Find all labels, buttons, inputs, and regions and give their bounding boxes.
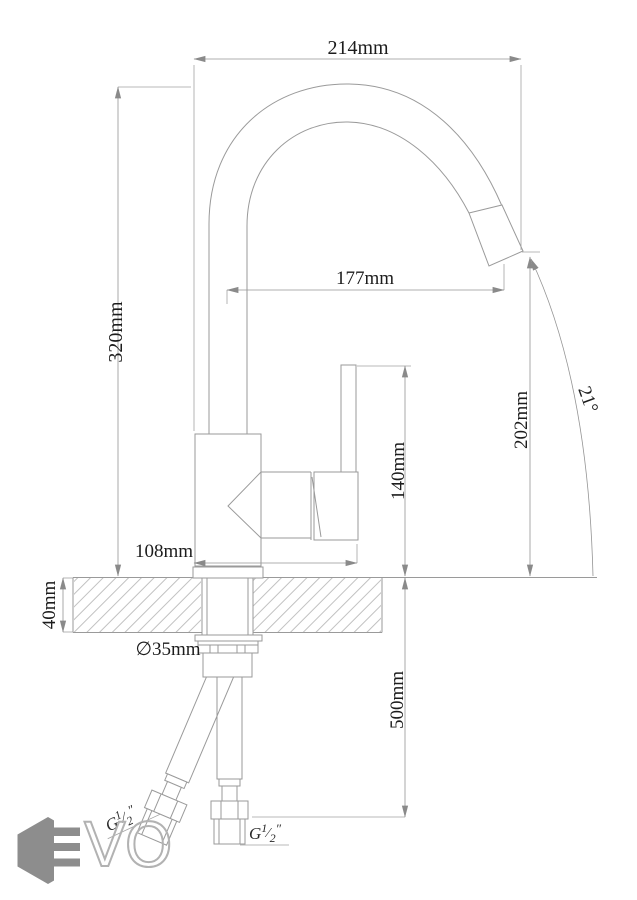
mounting-shank (202, 578, 253, 635)
dimension-total-width: 214mm (194, 37, 521, 431)
mounting-nut (198, 641, 258, 653)
faucet-aerator (469, 205, 523, 266)
hose-right-braid (217, 672, 242, 779)
faucet-body-column (195, 434, 261, 566)
mounting-assembly (195, 578, 262, 677)
faucet-handle-lever (341, 365, 356, 472)
drawing-svg: 214mm 320mm 177mm 202mm 21° 140mm 108mm … (0, 0, 637, 900)
faucet-body (193, 84, 523, 578)
thread-prefix: G (249, 824, 261, 843)
faucet-technical-drawing: 214mm 320mm 177mm 202mm 21° 140mm 108mm … (0, 0, 637, 900)
hose-right-nut (211, 801, 248, 819)
brand-logo: VO (18, 810, 173, 889)
thread-inches-mark: ″ (276, 821, 282, 836)
dim-body-depth-label: 108mm (135, 541, 193, 562)
dimension-spout-outlet-height: 202mm (511, 252, 540, 576)
dim-counter-thickness-label: 40mm (39, 581, 60, 630)
countertop-hatch-left (74, 578, 201, 632)
hose-right-collar (219, 779, 240, 786)
faucet-cartridge-housing (261, 472, 311, 540)
dim-spout-reach-label: 177mm (336, 268, 394, 289)
countertop (73, 578, 597, 633)
logo-outline-letters: VO (84, 810, 173, 881)
mounting-cylinder (203, 653, 252, 677)
logo-e-bar-middle (54, 843, 80, 851)
dim-hole-diameter-label: ∅35mm (135, 639, 200, 660)
thread-right-text: G1⁄2″ (249, 821, 282, 845)
dimension-counter-thickness: 40mm (39, 578, 73, 632)
dimension-total-height: 320mm (105, 87, 191, 576)
supply-hose-right (211, 672, 248, 844)
faucet-base-flange (193, 567, 263, 578)
logo-e-bar-top (54, 828, 80, 837)
hose-right-neck (222, 786, 237, 801)
dim-spout-outlet-height-label: 202mm (511, 391, 532, 449)
thread-label-right: G1⁄2″ (240, 821, 289, 845)
dim-hose-length-label: 500mm (387, 671, 408, 729)
mounting-washer (195, 635, 262, 641)
countertop-hatch-right (253, 578, 381, 632)
faucet-handle-body (314, 472, 358, 540)
dim-total-height-label: 320mm (105, 301, 127, 363)
dimension-handle-height: 140mm (357, 366, 411, 576)
water-trajectory-arc (531, 259, 593, 576)
dimension-spout-angle: 21° (531, 259, 602, 576)
dim-total-width-label: 214mm (327, 37, 389, 59)
dimension-hole-diameter: ∅35mm (135, 639, 200, 660)
dim-handle-height-label: 140mm (388, 442, 409, 500)
dimension-spout-reach: 177mm (227, 264, 504, 304)
hose-left-braid (166, 663, 236, 783)
logo-e-bar-bottom (54, 859, 80, 867)
